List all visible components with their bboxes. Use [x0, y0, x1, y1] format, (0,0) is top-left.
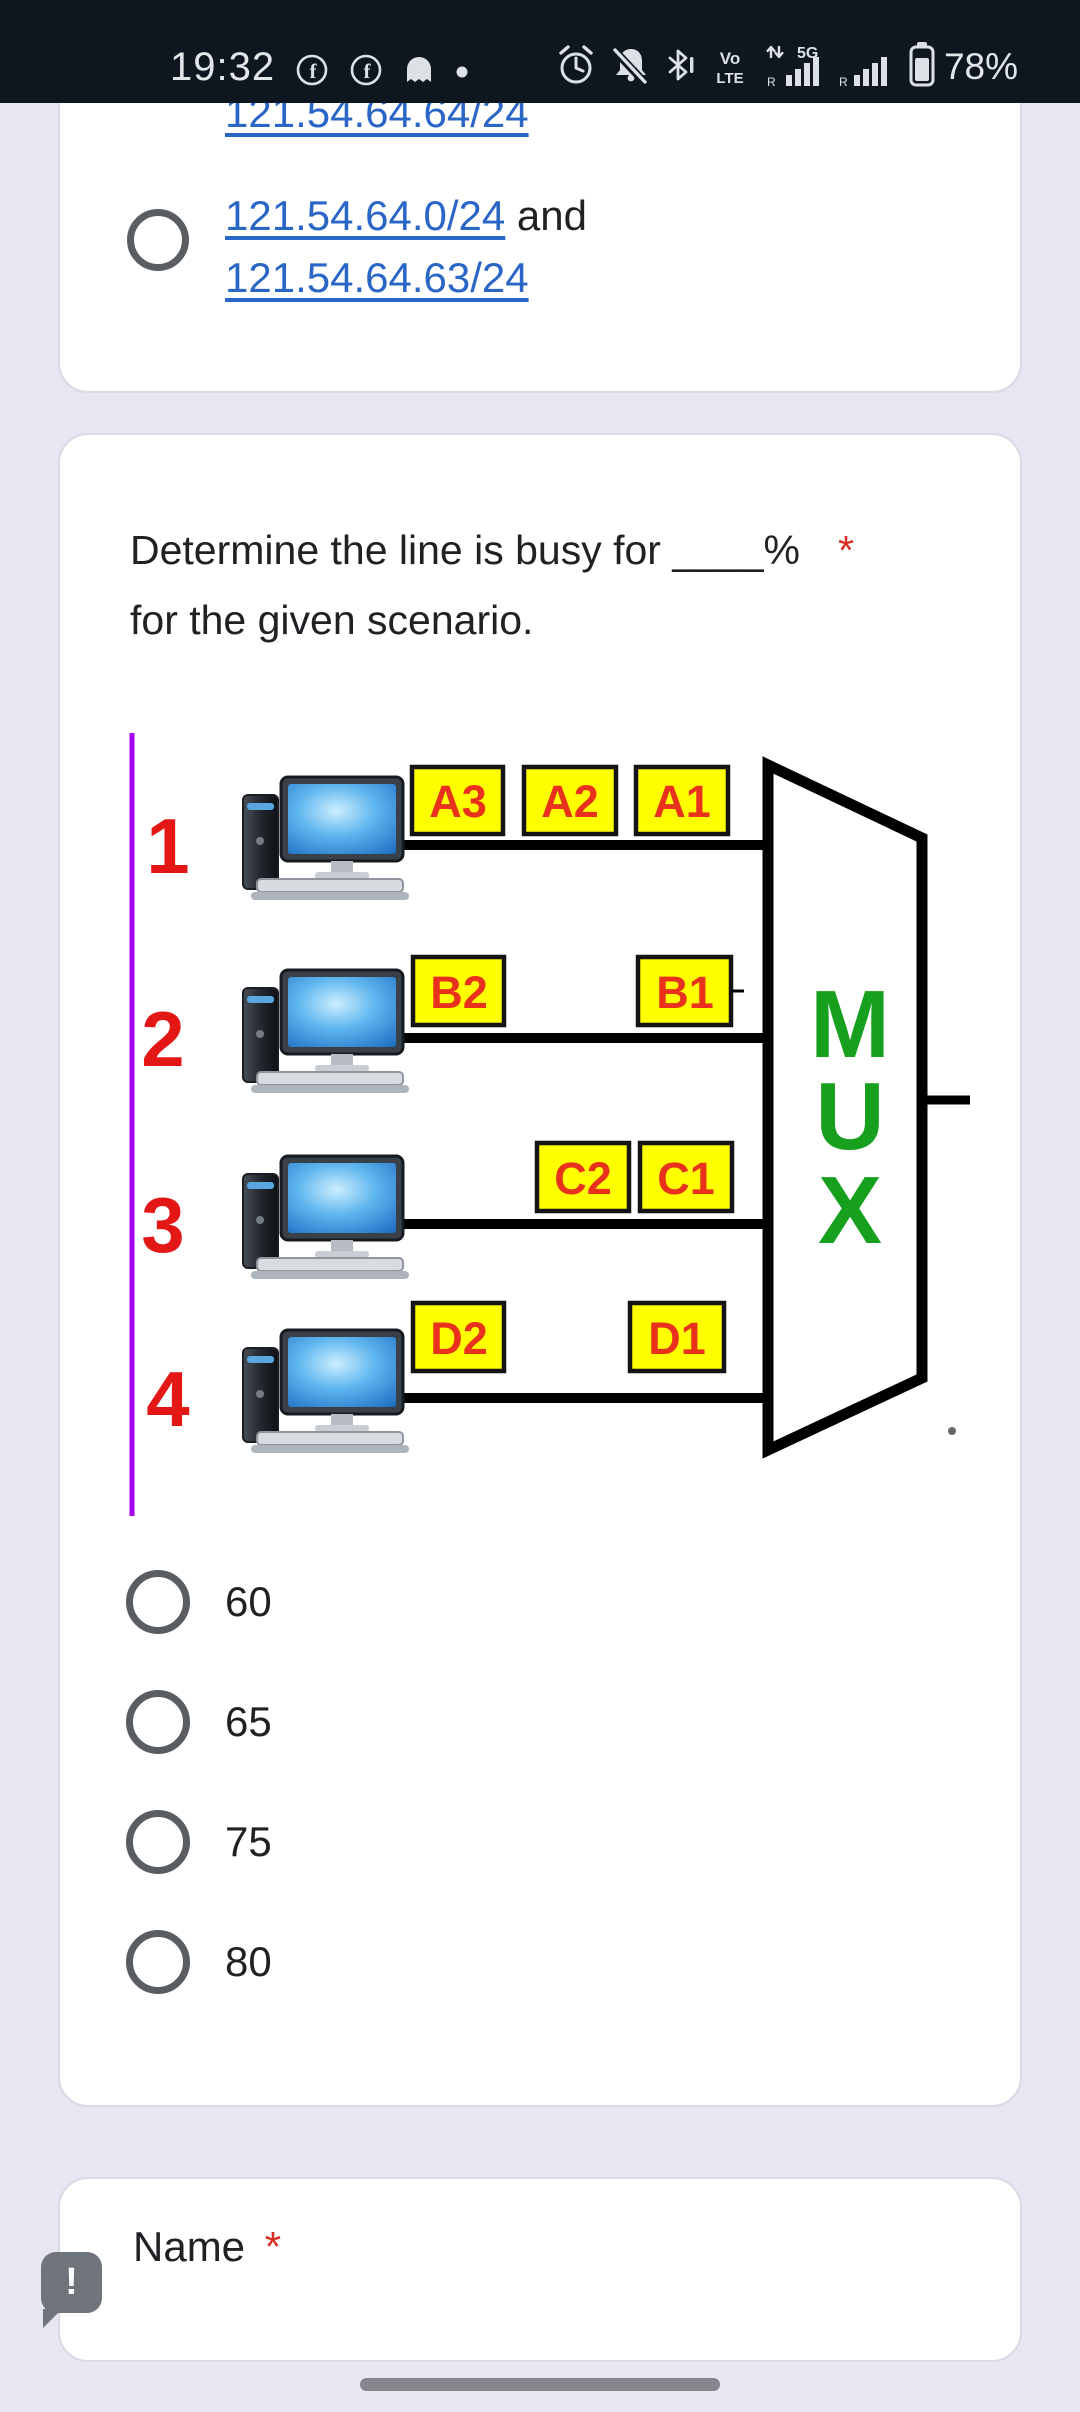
- packet-label: B2: [430, 967, 488, 1018]
- packet-label: A2: [541, 776, 599, 827]
- svg-text:R: R: [767, 75, 776, 87]
- computer-icon: [243, 1156, 409, 1279]
- packet-label: B1: [656, 967, 714, 1018]
- option-label-60[interactable]: 60: [225, 1578, 272, 1626]
- question-text-line1: Determine the line is busy for ____%: [130, 515, 800, 585]
- svg-text:Vo: Vo: [720, 49, 740, 68]
- bluetooth-icon: [664, 43, 696, 87]
- clock-text: 19:32: [170, 47, 275, 87]
- radio-option-80[interactable]: [126, 1930, 190, 1994]
- option-label-subnets[interactable]: 121.54.64.0/24 and 121.54.64.63/24: [225, 185, 587, 309]
- mux-letter: U: [815, 1063, 884, 1170]
- required-asterisk: *: [265, 2223, 281, 2270]
- line-number: 3: [141, 1181, 184, 1269]
- facebook-icon: f: [349, 51, 383, 87]
- required-asterisk: *: [838, 515, 854, 585]
- conjunction-text: and: [505, 192, 587, 239]
- option-label-75[interactable]: 75: [225, 1818, 272, 1866]
- question-card-mux: Determine the line is busy for ____% * f…: [58, 433, 1022, 2107]
- mux-diagram-image[interactable]: 1 2 3 4 A3: [80, 702, 975, 1522]
- bell-off-icon: [610, 43, 652, 87]
- volte-icon: Vo LTE: [708, 43, 752, 87]
- radio-option-65[interactable]: [126, 1690, 190, 1754]
- facebook-icon: f: [295, 51, 329, 87]
- computer-icon: [243, 1330, 409, 1453]
- name-label-text: Name: [133, 2223, 245, 2270]
- alarm-icon: [554, 43, 598, 87]
- mux-letter: X: [818, 1157, 882, 1264]
- packet-label: D1: [648, 1313, 706, 1364]
- mux-letter: M: [810, 971, 890, 1078]
- signal-5g-icon: 5G R: [764, 43, 826, 87]
- option-label-80[interactable]: 80: [225, 1938, 272, 1986]
- packet-label: A3: [429, 776, 487, 827]
- packet-label: D2: [430, 1313, 488, 1364]
- svg-text:f: f: [310, 59, 318, 83]
- computer-icon: [243, 777, 409, 900]
- subnet-link[interactable]: 121.54.64.63/24: [225, 254, 529, 301]
- status-right-group: Vo LTE 5G R R: [542, 41, 1018, 87]
- question-card-name: Name *: [58, 2177, 1022, 2362]
- packet-label: C1: [657, 1153, 715, 1204]
- battery-percent-text: 78%: [944, 47, 1018, 87]
- svg-text:R: R: [839, 75, 848, 87]
- computer-icon: [243, 970, 409, 1093]
- status-bar: 19:32 f f: [0, 0, 1080, 103]
- report-bubble-button[interactable]: !: [41, 2252, 102, 2313]
- line-number: 2: [141, 995, 184, 1083]
- packet-label: A1: [653, 776, 711, 827]
- question-text-line2: for the given scenario.: [130, 585, 1010, 655]
- signal-icon: R: [838, 43, 894, 87]
- subnet-link[interactable]: 121.54.64.0/24: [225, 192, 505, 239]
- packet-label: C2: [554, 1153, 612, 1204]
- radio-option-subnets[interactable]: [127, 209, 189, 271]
- status-left-group: 19:32 f f: [170, 47, 469, 87]
- radio-option-75[interactable]: [126, 1810, 190, 1874]
- name-question-title: Name *: [133, 2222, 281, 2272]
- question-title: Determine the line is busy for ____% * f…: [130, 515, 1010, 655]
- notification-dot-icon: [455, 51, 469, 87]
- stray-dot: [948, 1427, 956, 1435]
- question-card-previous: 121.54.64.64/24 121.54.64.0/24 and 121.5…: [58, 55, 1022, 393]
- radio-option-60[interactable]: [126, 1570, 190, 1634]
- google-form-page: 19:32 f f: [0, 0, 1080, 2412]
- snapchat-icon: [403, 51, 435, 87]
- exclamation-icon: !: [65, 2261, 78, 2304]
- battery-icon: [906, 41, 938, 87]
- svg-text:f: f: [364, 59, 372, 83]
- gesture-navigation-bar[interactable]: [360, 2378, 720, 2391]
- svg-text:LTE: LTE: [716, 70, 743, 87]
- option-label-65[interactable]: 65: [225, 1698, 272, 1746]
- line-number: 1: [146, 802, 189, 890]
- line-number: 4: [146, 1355, 189, 1443]
